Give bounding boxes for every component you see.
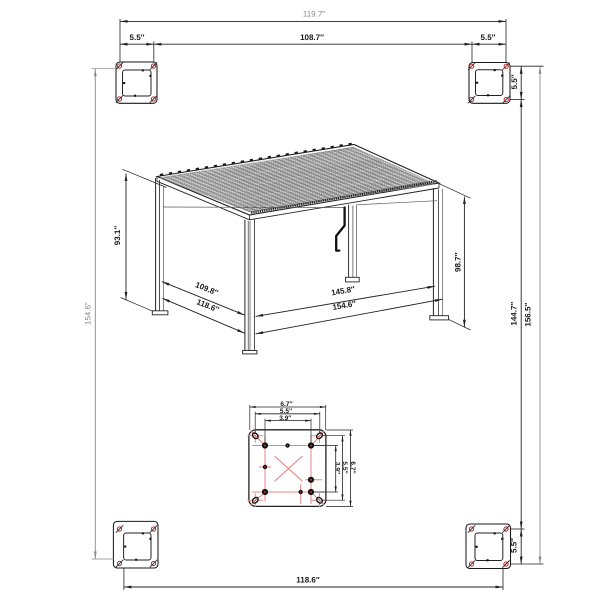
svg-text:5.5″: 5.5″ [130,33,145,42]
svg-text:156.5″: 156.5″ [523,303,532,327]
svg-text:93.1″: 93.1″ [113,226,122,246]
svg-text:6.7″: 6.7″ [280,401,292,408]
svg-text:108.7″: 108.7″ [300,33,324,42]
svg-text:5.5″: 5.5″ [280,408,292,415]
svg-text:3.9″: 3.9″ [279,415,291,422]
svg-text:98.7″: 98.7″ [454,252,463,272]
svg-text:5.5″: 5.5″ [510,538,519,553]
svg-text:118.6″: 118.6″ [296,576,320,585]
svg-text:154.6″: 154.6″ [83,302,92,325]
svg-text:144.7″: 144.7″ [510,302,519,326]
svg-text:5.5″: 5.5″ [481,33,496,42]
svg-text:6.7″: 6.7″ [349,461,356,473]
svg-text:5.5″: 5.5″ [510,74,519,89]
svg-text:5.5″: 5.5″ [341,461,348,473]
svg-text:119.7″: 119.7″ [303,10,325,19]
svg-text:3.9″: 3.9″ [334,462,341,474]
